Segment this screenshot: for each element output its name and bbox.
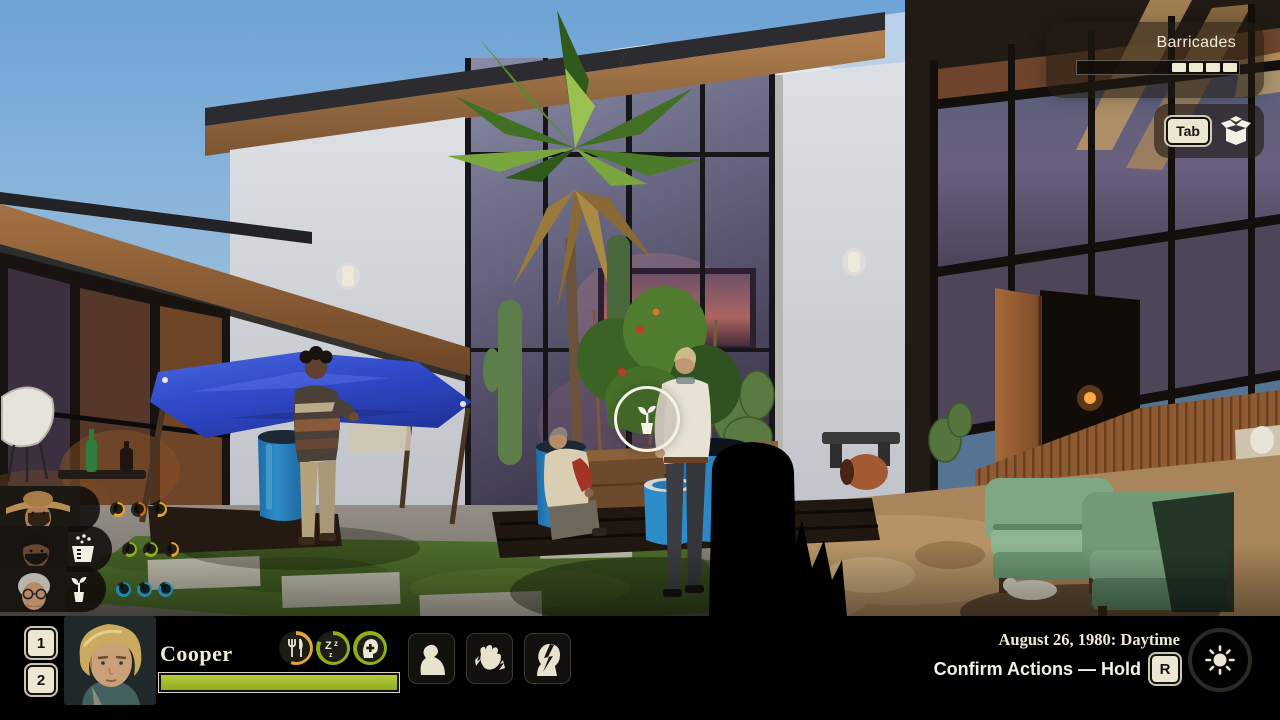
party-member-2-needs (122, 542, 179, 557)
active-character-name: Cooper (160, 641, 233, 667)
need-ring (143, 542, 158, 557)
need-ring (158, 582, 173, 597)
barricade-segment (1172, 63, 1186, 72)
party-member-3[interactable] (0, 566, 173, 612)
status-hand-cramp[interactable] (466, 633, 513, 684)
cooper-portrait (64, 616, 156, 705)
svg-text:z: z (329, 652, 333, 658)
need-ring (122, 542, 137, 557)
r-keycap: R (1150, 654, 1180, 684)
active-character-portrait[interactable] (64, 616, 156, 705)
need-ring (152, 502, 167, 517)
party-member-3-needs (116, 582, 173, 597)
elderly-woman-glasses-portrait (0, 566, 66, 612)
svg-text:z: z (334, 639, 338, 648)
need-morale (353, 631, 387, 665)
game-date: August 26, 1980: Daytime (999, 630, 1181, 650)
game-screen: THIS WAY (0, 0, 1280, 720)
barricade-segment (1206, 63, 1220, 72)
morale-icon (360, 638, 380, 658)
scene-courtyard: THIS WAY (0, 0, 1280, 720)
interaction-marker[interactable] (614, 386, 680, 452)
need-sleep: Z z z (316, 631, 350, 665)
active-character-needs: Z z z (279, 631, 387, 665)
potted-plant-icon (632, 403, 662, 435)
need-ring (116, 582, 131, 597)
open-box-icon (1220, 116, 1252, 146)
need-ring (131, 502, 146, 517)
potted-plant-icon (68, 575, 90, 603)
health-bar (158, 672, 400, 693)
slumped-person-icon (417, 642, 447, 676)
head-pain-icon (533, 642, 563, 676)
barricade-segment (1223, 63, 1237, 72)
barricades-progress-bar (1076, 60, 1240, 75)
hotkey-1[interactable]: 1 (26, 628, 56, 658)
confirm-actions-label: Confirm Actions — Hold (934, 659, 1141, 680)
barricades-panel: Barricades (1046, 22, 1264, 98)
barricades-label: Barricades (1157, 34, 1236, 52)
washing-basket-icon (70, 534, 96, 564)
hotkey-2[interactable]: 2 (26, 665, 56, 695)
party-member-1-needs (110, 502, 167, 517)
status-head-pain[interactable] (524, 633, 571, 684)
time-of-day-dial (1188, 628, 1252, 692)
need-food (279, 631, 313, 665)
barricade-segment (1189, 63, 1203, 72)
status-effects (408, 633, 571, 684)
status-slumped-person[interactable] (408, 633, 455, 684)
character-hotkeys: 1 2 (26, 628, 56, 695)
sun-icon (1205, 645, 1235, 675)
need-ring (164, 542, 179, 557)
tab-keycap: Tab (1166, 117, 1210, 145)
party-member-3-portrait (0, 566, 106, 612)
health-bar-fill (161, 675, 397, 690)
inventory-shortcut[interactable]: Tab (1154, 104, 1264, 158)
hand-cramp-icon (473, 642, 507, 676)
confirm-actions: Confirm Actions — Hold R (934, 654, 1180, 684)
food-icon (287, 638, 305, 658)
sleep-icon: Z z z (323, 638, 343, 658)
svg-text:Z: Z (325, 640, 332, 652)
need-ring (110, 502, 125, 517)
need-ring (137, 582, 152, 597)
